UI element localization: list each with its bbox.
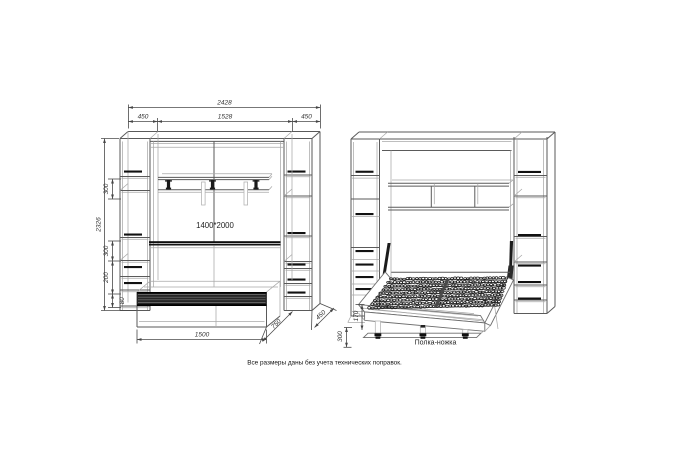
svg-text:300: 300 — [337, 331, 344, 342]
svg-text:1500: 1500 — [195, 332, 210, 339]
svg-text:1528: 1528 — [218, 113, 233, 120]
svg-text:1400*2000: 1400*2000 — [196, 221, 234, 230]
svg-text:750: 750 — [270, 318, 283, 331]
svg-text:450: 450 — [315, 309, 328, 322]
svg-text:Все размеры даны без учета тех: Все размеры даны без учета технических п… — [247, 358, 402, 366]
svg-text:300: 300 — [103, 245, 110, 256]
svg-text:300: 300 — [103, 183, 110, 194]
svg-text:170: 170 — [353, 310, 360, 321]
svg-text:2428: 2428 — [216, 100, 232, 107]
svg-text:200: 200 — [103, 272, 110, 284]
svg-text:80: 80 — [119, 297, 126, 304]
svg-text:Полка-ножка: Полка-ножка — [415, 340, 457, 347]
svg-text:450: 450 — [301, 113, 312, 120]
svg-text:450: 450 — [138, 113, 149, 120]
svg-text:2326: 2326 — [95, 217, 102, 233]
